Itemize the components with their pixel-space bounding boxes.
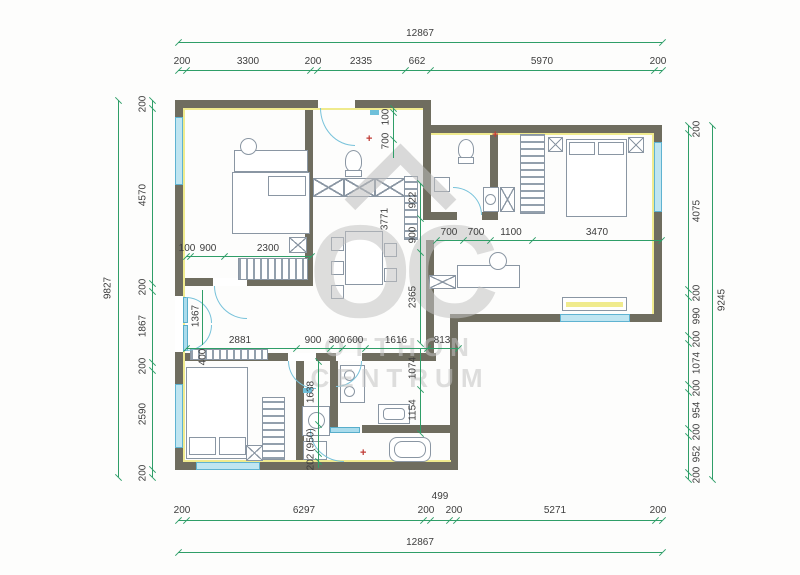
dim-line-left-overall	[118, 100, 119, 477]
dim-line-1367	[202, 290, 203, 345]
dim-left-seg6: 200	[138, 465, 149, 482]
entry-door-opening	[175, 296, 183, 352]
window-sill-yellow	[566, 302, 623, 307]
dim-right-seg2: 200	[692, 285, 703, 302]
dim-right-overall: 9245	[717, 289, 728, 311]
dim-right-seg4: 200	[692, 331, 703, 348]
chair-stool	[240, 138, 257, 155]
dim-bottom-seg0: 200	[174, 505, 191, 516]
dim-left-seg4: 200	[138, 358, 149, 375]
watermark: OC OTTHON CENTRUM	[300, 160, 500, 394]
dim-int-b1-0: 100	[179, 243, 196, 254]
dim-right-seg9: 952	[692, 446, 703, 463]
hall-door-opening-top	[318, 100, 355, 108]
floorplan-canvas: + + + OC OTTHON CENTRUM 12867 200 3300 2…	[0, 0, 800, 575]
dim-int-bath2: 1100	[500, 227, 522, 238]
dim-line-corridor	[420, 183, 421, 343]
dim-top-overall: 12867	[406, 28, 434, 39]
dim-int-corr1: 900	[408, 227, 419, 244]
dim-line-top-segments	[178, 70, 662, 71]
dim-int-bath1: 700	[468, 227, 485, 238]
dim-top-seg6: 200	[650, 56, 667, 67]
toilet-bath	[458, 139, 474, 159]
dim-int-corr0: 922	[408, 192, 419, 209]
bathtub-inner	[394, 441, 426, 458]
dim-line-middle	[186, 348, 458, 349]
valve-icon-entry	[370, 110, 379, 115]
nightstand-2	[548, 137, 563, 152]
dim-right-seg5: 1074	[692, 352, 703, 374]
dim-top-seg3: 2335	[350, 56, 372, 67]
dim-right-seg8: 200	[692, 424, 703, 441]
nightstand-4	[246, 445, 263, 461]
drain-icon-bath2: +	[360, 448, 366, 459]
dim-int-ba22: 202	[306, 454, 317, 471]
dim-int-1367: 1367	[191, 305, 202, 327]
dim-left-seg1: 4570	[138, 184, 149, 206]
dim-bottom-overall: 12867	[406, 537, 434, 548]
dim-int-mid4: 1616	[385, 335, 407, 346]
window-bedroom-right	[654, 142, 662, 212]
dim-int-ba20: 1638	[306, 381, 317, 403]
dim-top-seg0: 200	[174, 56, 191, 67]
window-living-bottom	[560, 314, 630, 322]
hall-door-arc-top	[320, 108, 355, 146]
dim-right-seg0: 200	[692, 121, 703, 138]
dim-int-mid3: 600	[347, 335, 364, 346]
dryer	[500, 187, 515, 212]
dim-line-entry	[393, 108, 394, 158]
dim-line-bath-chain	[436, 240, 662, 241]
radiator-bedroom1	[238, 258, 308, 280]
dim-bottom-seg2: 200	[418, 505, 435, 516]
wardrobe-bedroom3	[520, 134, 545, 214]
bed-2-pillow-left	[569, 142, 595, 155]
dim-line-top-overall	[178, 42, 662, 43]
window-bedroom2-bottom	[196, 462, 260, 470]
dim-int-ba21: (950)	[306, 428, 317, 451]
dim-int-bath3: 3470	[586, 227, 608, 238]
dim-int-b1-1: 900	[200, 243, 217, 254]
tap-icon-hall: +	[366, 134, 372, 145]
bath2-door-leaf	[330, 427, 360, 433]
bedroom1-door-arc	[214, 286, 247, 319]
dim-line-bedroom1	[186, 256, 312, 257]
dim-int-mid0: 2881	[229, 335, 251, 346]
dim-int-b1-2: 2300	[257, 243, 279, 254]
dim-right-seg6: 200	[692, 380, 703, 397]
bed-2-pillow-right	[598, 142, 624, 155]
dim-bottom-seg5: 5271	[544, 505, 566, 516]
dim-line-right-overall	[712, 125, 713, 479]
dim-int-mid2: 300	[329, 335, 346, 346]
dim-right-seg1: 4075	[692, 200, 703, 222]
dim-int-400: 400	[198, 349, 209, 366]
tap-icon-bath: +	[492, 130, 498, 141]
dim-int-kit1: 1154	[408, 399, 419, 421]
dim-line-left-segments	[152, 100, 153, 477]
dim-bottom-seg1: 6297	[293, 505, 315, 516]
dim-right-seg3: 990	[692, 308, 703, 325]
dim-top-seg2: 200	[305, 56, 322, 67]
dim-left-overall: 9827	[103, 277, 114, 299]
sink-kitchen-basin	[383, 408, 405, 420]
wall-bath2-top-b	[362, 425, 458, 433]
dim-int-bath0: 700	[441, 227, 458, 238]
dim-left-seg5: 2590	[138, 403, 149, 425]
dim-int-kit0: 1074	[408, 357, 419, 379]
dim-int-3771: 3771	[380, 208, 391, 230]
insulation-left	[183, 108, 185, 462]
window-bedroom2-left	[175, 384, 183, 448]
dim-top-seg1: 3300	[237, 56, 259, 67]
dim-int-entry1: 700	[381, 133, 392, 150]
dim-top-seg5: 5970	[531, 56, 553, 67]
bed-3-pillow-right	[219, 437, 246, 455]
wall-exterior-top-right	[430, 125, 662, 133]
dim-line-bottom-overall	[178, 552, 662, 553]
wardrobe-bedroom2	[262, 397, 285, 460]
dim-right-seg7: 954	[692, 402, 703, 419]
dim-left-seg0: 200	[138, 96, 149, 113]
nightstand-3	[628, 137, 644, 153]
washing-machine-2-drum	[308, 412, 325, 429]
dim-bottom-seg6: 200	[650, 505, 667, 516]
dim-top-seg4: 662	[409, 56, 426, 67]
dim-int-entry0: 100	[381, 109, 392, 126]
dim-int-mid1: 900	[305, 335, 322, 346]
dim-bottom-seg4: 200	[446, 505, 463, 516]
dim-int-mid5: 813	[434, 335, 451, 346]
dim-bottom-seg3: 499	[432, 491, 449, 502]
dim-right-seg10: 200	[692, 467, 703, 484]
window-bedroom1-left	[175, 117, 183, 185]
bed-3-pillow-left	[189, 437, 216, 455]
dim-left-seg3: 1867	[138, 315, 149, 337]
dim-left-seg2: 200	[138, 279, 149, 296]
dim-line-right-segments	[688, 125, 689, 479]
watermark-line2: CENTRUM	[300, 363, 500, 394]
dim-line-bottom-segments	[178, 520, 662, 521]
dim-int-corr2: 2365	[408, 286, 419, 308]
